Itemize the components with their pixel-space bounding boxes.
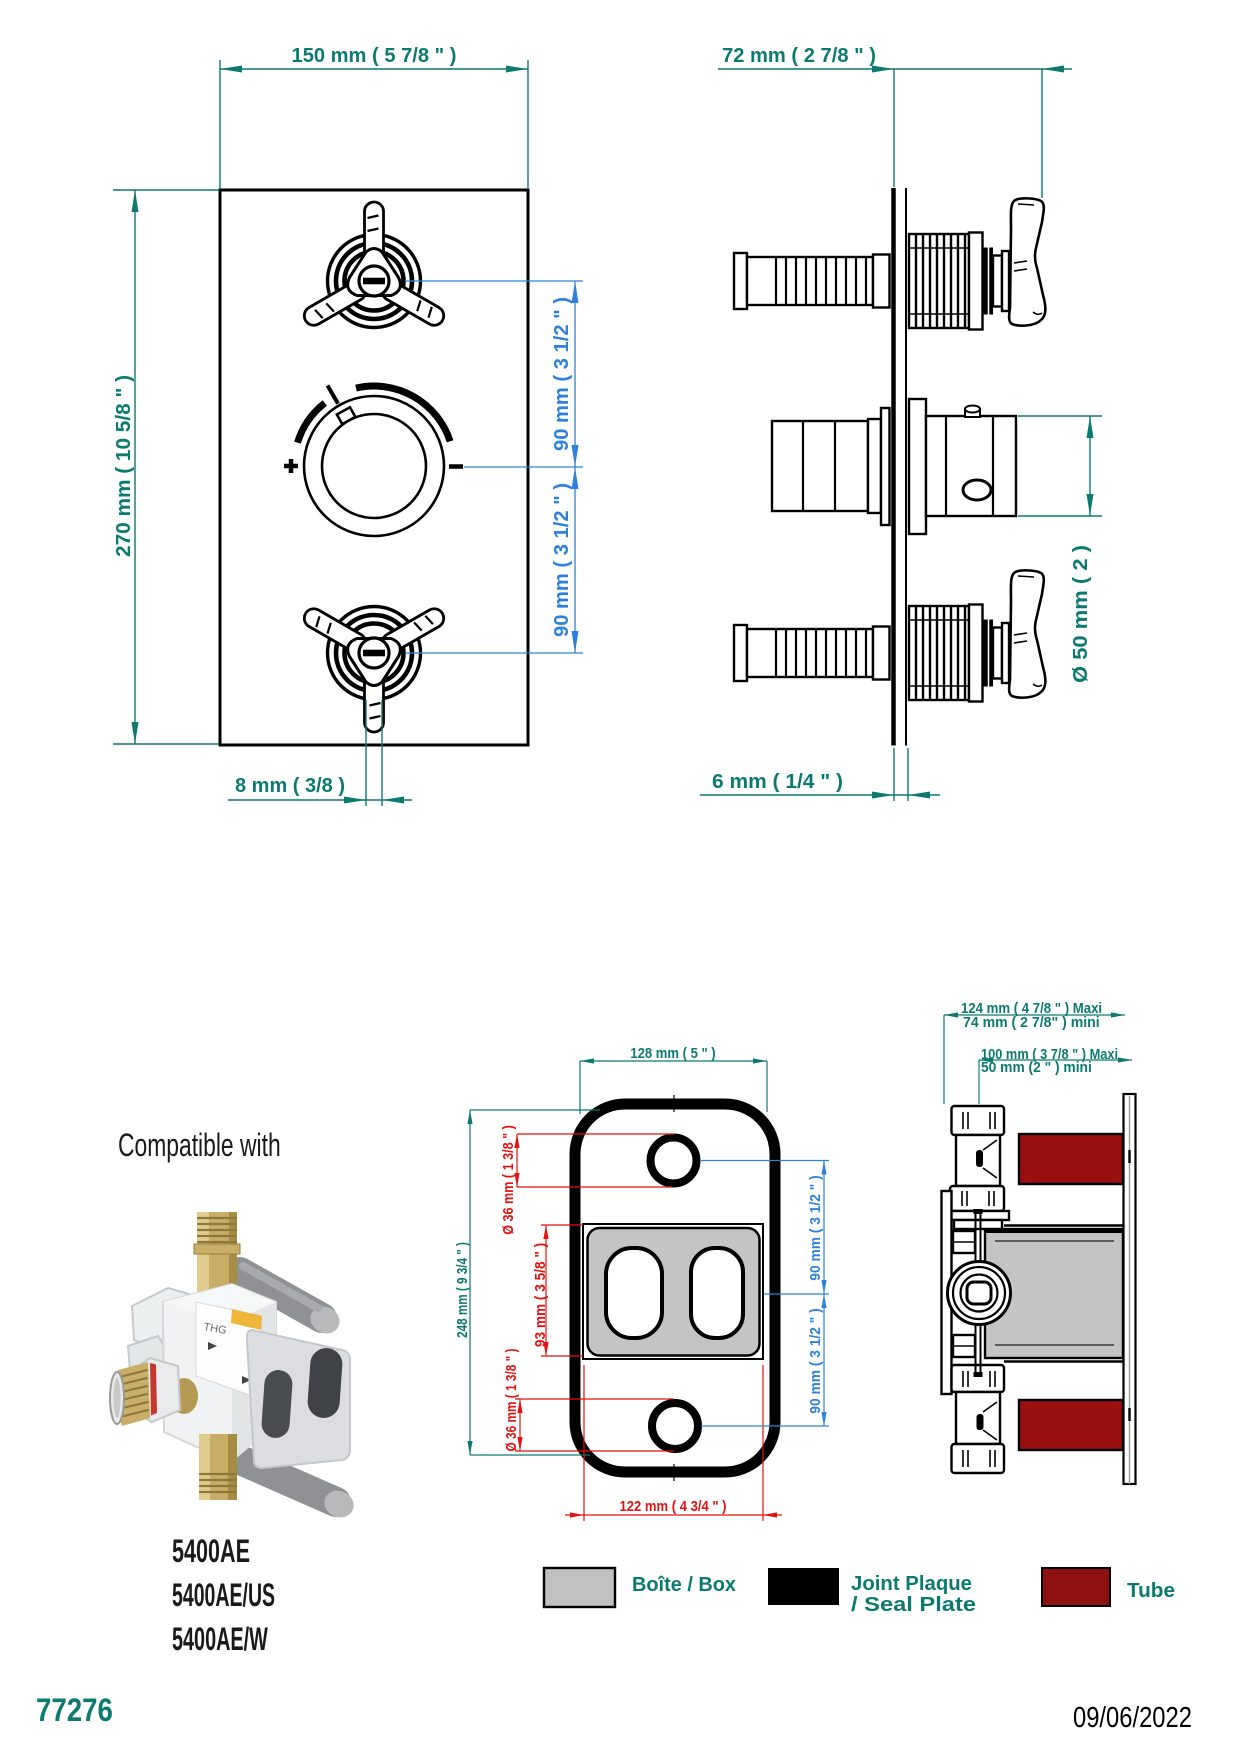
- svg-text:Boîte / Box: Boîte / Box: [632, 1574, 736, 1596]
- svg-text:8 mm ( 3/8 ): 8 mm ( 3/8 ): [235, 775, 345, 797]
- svg-text:/ Seal Plate: / Seal Plate: [851, 1594, 976, 1616]
- svg-text:74 mm ( 2 7/8" ) mini: 74 mm ( 2 7/8" ) mini: [963, 1015, 1100, 1031]
- svg-text:Joint Plaque: Joint Plaque: [851, 1573, 972, 1595]
- svg-text:248 mm ( 9 3/4 " ): 248 mm ( 9 3/4 " ): [454, 1242, 471, 1338]
- svg-text:5400AE/US: 5400AE/US: [172, 1577, 275, 1613]
- svg-text:270 mm ( 10 5/8 " ): 270 mm ( 10 5/8 " ): [113, 375, 135, 557]
- svg-text:150 mm ( 5 7/8 " ): 150 mm ( 5 7/8 " ): [292, 45, 457, 67]
- svg-text:72 mm ( 2 7/8 " ): 72 mm ( 2 7/8 " ): [722, 45, 876, 67]
- svg-text:50 mm (2 " ) mini: 50 mm (2 " ) mini: [981, 1060, 1092, 1077]
- svg-text:09/06/2022: 09/06/2022: [1073, 1701, 1192, 1734]
- svg-text:90 mm ( 3 1/2 " ): 90 mm ( 3 1/2 " ): [808, 1308, 825, 1414]
- svg-text:Ø 50 mm ( 2 ): Ø 50 mm ( 2 ): [1070, 545, 1092, 683]
- svg-text:90 mm ( 3 1/2 " ): 90 mm ( 3 1/2 " ): [808, 1175, 825, 1281]
- svg-text:122 mm ( 4 3/4 " ): 122 mm ( 4 3/4 " ): [620, 1497, 727, 1514]
- svg-text:90 mm ( 3 1/2 " ): 90 mm ( 3 1/2 " ): [551, 483, 573, 637]
- svg-text:77276: 77276: [36, 1693, 113, 1728]
- svg-text:Tube: Tube: [1127, 1580, 1175, 1602]
- svg-text:5400AE/W: 5400AE/W: [172, 1621, 269, 1657]
- svg-text:93 mm ( 3 5/8 " ): 93 mm ( 3 5/8 " ): [532, 1243, 549, 1347]
- svg-text:Ø 36 mm ( 1 3/8 " ): Ø 36 mm ( 1 3/8 " ): [503, 1349, 520, 1452]
- svg-text:6 mm ( 1/4 " ): 6 mm ( 1/4 " ): [712, 771, 843, 793]
- svg-text:124 mm ( 4 7/8 " ) Maxi: 124 mm ( 4 7/8 " ) Maxi: [961, 999, 1102, 1016]
- svg-text:Compatible with: Compatible with: [118, 1127, 281, 1163]
- svg-text:Ø 36 mm ( 1 3/8 " ): Ø 36 mm ( 1 3/8 " ): [499, 1125, 516, 1235]
- svg-text:5400AE: 5400AE: [172, 1533, 250, 1569]
- svg-text:128 mm ( 5 " ): 128 mm ( 5 " ): [630, 1044, 715, 1061]
- svg-text:90 mm ( 3 1/2 " ): 90 mm ( 3 1/2 " ): [551, 297, 573, 451]
